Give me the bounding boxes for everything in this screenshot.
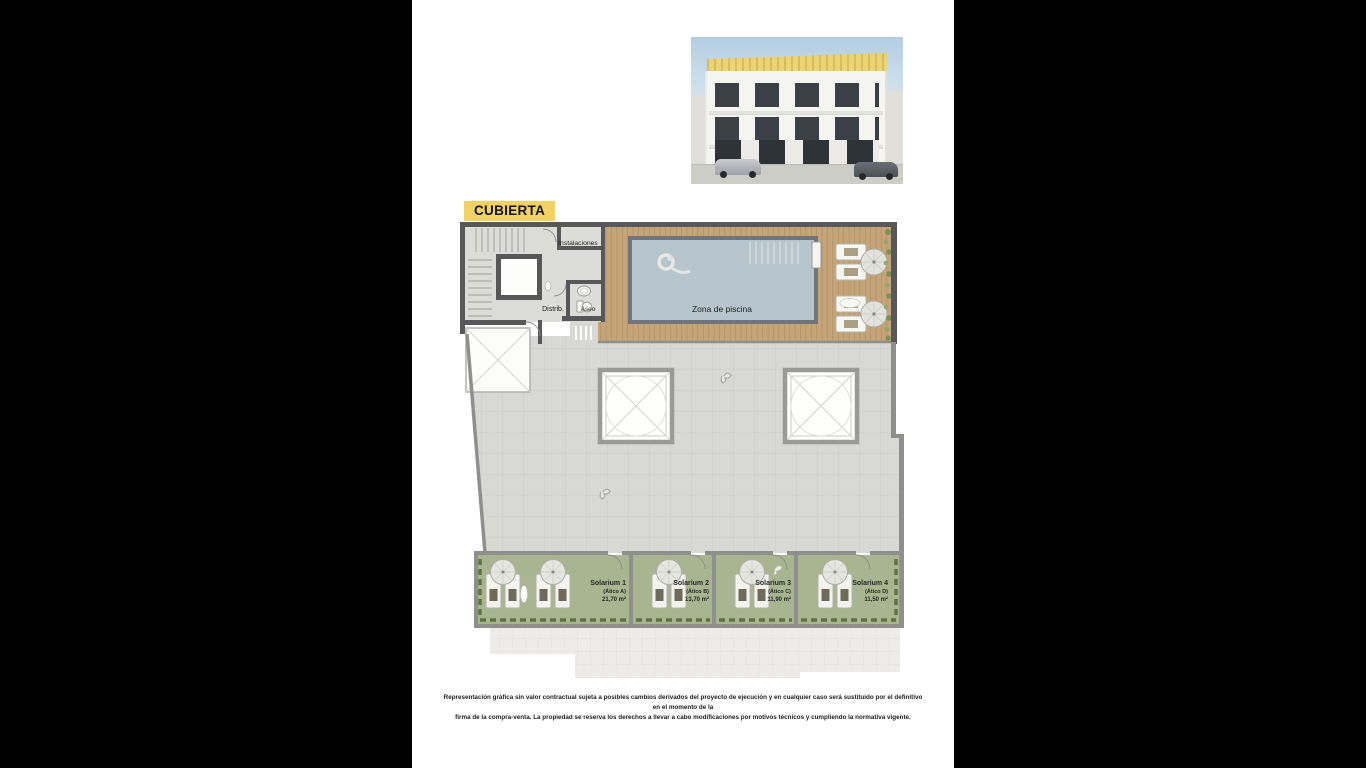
solarium-strip: Solarium 1 (Ático A) 21,70 m² Solarium 2… bbox=[474, 551, 904, 624]
solarium-2-area: 13,70 m² bbox=[685, 596, 709, 603]
lower-level-terrace-faded bbox=[490, 628, 900, 678]
person-icon bbox=[521, 586, 528, 603]
legal-disclaimer: Representación gráfica sin valor contrac… bbox=[440, 693, 926, 722]
car-icon bbox=[854, 162, 898, 177]
adjacent-building-right bbox=[887, 90, 903, 165]
solarium-4-unit: (Ático D) bbox=[865, 588, 888, 595]
solarium-3-unit: (Ático C) bbox=[768, 588, 791, 595]
building-facade bbox=[705, 71, 887, 164]
solarium-1-area: 21,70 m² bbox=[602, 596, 626, 603]
sink-icon bbox=[578, 286, 591, 296]
letterbox-background: CUBIERTA bbox=[0, 0, 1366, 768]
building-elevation-render bbox=[691, 37, 903, 184]
solarium-1-unit: (Ático A) bbox=[603, 588, 626, 595]
solarium-3-area: 11,90 m² bbox=[767, 596, 791, 603]
floor-plan: Zona de piscina bbox=[460, 222, 906, 690]
windows-floor1 bbox=[715, 117, 879, 141]
room-label-instalaciones: Instalaciones bbox=[558, 240, 598, 247]
elevator-icon bbox=[496, 254, 542, 300]
pool-zone-label: Zona de piscina bbox=[692, 304, 752, 314]
floor-slab bbox=[709, 111, 883, 114]
floor-plan-drawing: Zona de piscina bbox=[460, 222, 906, 690]
room-label-distribuidor: Distrib. bbox=[542, 306, 564, 313]
solarium-4-area: 11,50 m² bbox=[864, 596, 888, 603]
skylight-icon bbox=[600, 370, 672, 442]
room-label-aseo: Aseo bbox=[581, 306, 596, 313]
solarium-4-name: Solarium 4 bbox=[852, 580, 888, 587]
brochure-page: CUBIERTA bbox=[412, 0, 954, 768]
disclaimer-line-1: Representación gráfica sin valor contrac… bbox=[440, 693, 926, 713]
plant-icon bbox=[545, 282, 551, 291]
skylight-icon bbox=[785, 370, 857, 442]
page-title: CUBIERTA bbox=[464, 201, 555, 221]
solarium-1-name: Solarium 1 bbox=[590, 580, 626, 587]
solarium-3-name: Solarium 3 bbox=[755, 580, 791, 587]
solarium-2-unit: (Ático B) bbox=[686, 588, 709, 595]
person-icon bbox=[840, 299, 860, 308]
disclaimer-line-2: firma de la compra-venta. La propiedad s… bbox=[440, 713, 926, 723]
windows-floor2 bbox=[715, 83, 879, 107]
car-icon bbox=[715, 159, 761, 175]
outdoor-shower-area bbox=[570, 322, 598, 343]
pool-ladder-icon bbox=[812, 242, 821, 268]
adjacent-building-left bbox=[691, 95, 705, 165]
solarium-2-name: Solarium 2 bbox=[673, 580, 709, 587]
swimming-pool: Zona de piscina bbox=[628, 236, 821, 324]
